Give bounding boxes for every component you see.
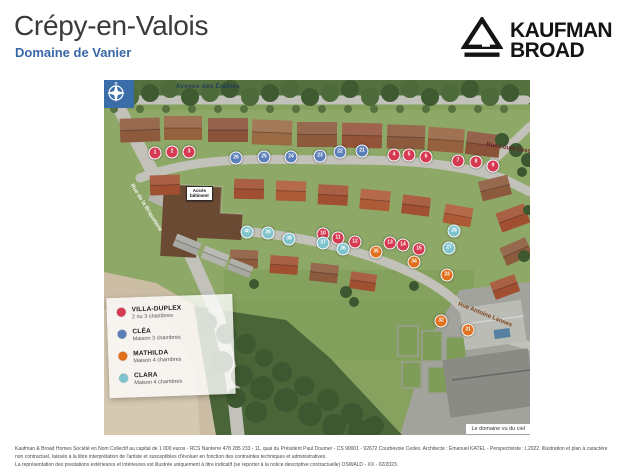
lot-marker-27[interactable]: 27 xyxy=(443,242,456,255)
legal-disclaimer: Kaufman & Broad Homes Société en Nom Col… xyxy=(15,446,613,469)
lot-marker-39[interactable]: 39 xyxy=(262,227,275,240)
compass-rose-icon: N xyxy=(104,80,134,108)
lot-marker-34[interactable]: 34 xyxy=(408,256,421,269)
lot-marker-37[interactable]: 37 xyxy=(317,237,330,250)
brand-line2: BROAD xyxy=(510,39,584,62)
legend-desc: Maison 3 chambres xyxy=(133,335,181,343)
disclaimer-line1: Kaufman & Broad Homes Société en Nom Col… xyxy=(15,446,613,462)
svg-text:N: N xyxy=(115,81,118,86)
page-subtitle: Domaine de Vanier xyxy=(15,45,131,60)
lot-marker-21[interactable]: 21 xyxy=(356,145,369,158)
lot-marker-6[interactable]: 6 xyxy=(420,151,433,164)
legend-panel: VILLA-DUPLEX 2 ou 3 chambres CLÉA Maison… xyxy=(106,294,235,398)
lot-marker-33[interactable]: 33 xyxy=(441,269,454,282)
clara-dot-icon xyxy=(119,374,128,383)
page-title: Crépy-en-Valois xyxy=(14,10,208,42)
lot-marker-32[interactable]: 32 xyxy=(435,315,448,328)
mathilda-dot-icon xyxy=(118,352,127,361)
legend-desc: 2 ou 3 chambres xyxy=(132,313,182,321)
access-line1: Accès xyxy=(193,188,206,193)
lot-marker-26[interactable]: 26 xyxy=(230,152,243,165)
lot-marker-22[interactable]: 22 xyxy=(334,146,347,159)
building-access-label: Accès bâtiment xyxy=(186,186,213,201)
legend-desc: Maison 4 chambres xyxy=(133,357,181,365)
legend-desc: Maison 4 chambres xyxy=(134,379,182,387)
lot-marker-13[interactable]: 13 xyxy=(384,237,397,250)
lot-marker-25[interactable]: 25 xyxy=(258,151,271,164)
legend-item-mathilda: MATHILDA Maison 4 chambres xyxy=(118,347,224,365)
kaufman-broad-triangle-icon xyxy=(461,17,503,64)
legend-item-clara: CLARA Maison 4 chambres xyxy=(119,369,225,387)
lot-marker-31[interactable]: 31 xyxy=(462,324,475,337)
site-plan-aerial-map: N Avenue des Érables Rue Louis Cesson Ru… xyxy=(104,80,530,435)
lot-marker-24[interactable]: 24 xyxy=(285,151,298,164)
lot-marker-38[interactable]: 38 xyxy=(283,233,296,246)
lot-marker-40[interactable]: 40 xyxy=(241,226,254,239)
disclaimer-line2: La représentation des prestations extéri… xyxy=(15,462,613,470)
lot-marker-14[interactable]: 14 xyxy=(397,239,410,252)
lot-marker-7[interactable]: 7 xyxy=(452,155,465,168)
villa-duplex-dot-icon xyxy=(117,308,126,317)
lot-marker-8[interactable]: 8 xyxy=(470,156,483,169)
clea-dot-icon xyxy=(117,330,126,339)
lot-marker-2[interactable]: 2 xyxy=(166,146,179,159)
lot-marker-4[interactable]: 4 xyxy=(388,149,401,162)
lot-marker-5[interactable]: 5 xyxy=(403,149,416,162)
lot-marker-35[interactable]: 35 xyxy=(370,246,383,259)
street-label-avenue-des-erables: Avenue des Érables xyxy=(176,84,240,90)
lot-marker-3[interactable]: 3 xyxy=(183,146,196,159)
legend-item-clea: CLÉA Maison 3 chambres xyxy=(117,325,223,343)
map-caption: Le domaine vu du ciel xyxy=(466,424,530,434)
lot-marker-12[interactable]: 12 xyxy=(349,236,362,249)
lot-marker-36[interactable]: 36 xyxy=(337,243,350,256)
lot-marker-23[interactable]: 23 xyxy=(314,150,327,163)
lot-marker-28[interactable]: 28 xyxy=(448,225,461,238)
lot-marker-15[interactable]: 15 xyxy=(413,243,426,256)
legend-item-villa-duplex: VILLA-DUPLEX 2 ou 3 chambres xyxy=(117,303,223,321)
brand-name: KAUFMAN BROAD xyxy=(510,21,612,60)
access-line2: bâtiment xyxy=(190,193,209,198)
lot-marker-9[interactable]: 9 xyxy=(487,160,500,173)
lot-marker-1[interactable]: 1 xyxy=(149,147,162,160)
kaufman-broad-logo: KAUFMAN BROAD xyxy=(461,17,612,64)
